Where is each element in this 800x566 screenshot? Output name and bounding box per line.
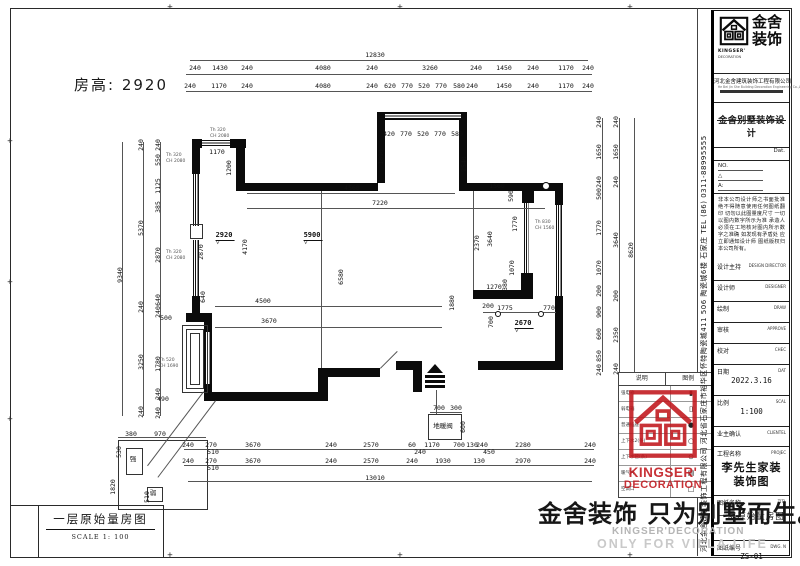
dim-label: 600 [596,328,603,340]
dim-label: 4560 [344,185,360,192]
row-label-cn: 审核 [717,325,729,334]
dim-label: 240 [584,458,596,465]
kingser-logo-icon [719,16,749,46]
dim-label: 4080 [315,83,331,90]
row-value: ZS-01 [714,552,789,561]
dimension-line [483,312,556,313]
dept-title-section: 金舍别墅装饰设计 [714,113,789,148]
dim-label: 200 [613,290,620,302]
watermark-slogan: 金舍装饰 只为别墅而生。 [538,494,800,529]
dim-label: 200 [596,285,603,297]
row-label-en: DWG. N [770,544,786,549]
dim-label: 770 [543,305,555,312]
dim-label: 620 [384,83,396,90]
point-circle [538,311,544,317]
wall-segment [192,148,200,174]
wall-segment [377,112,385,183]
window-symbol [193,174,199,226]
row-label-en: DRAW [774,305,786,310]
dim-label: 240 [241,83,253,90]
dim-label: 240 [613,176,620,188]
dim-label: 240 [155,407,162,419]
frame-tick: + [7,138,12,147]
frame-tick: + [397,552,402,561]
dim-label: 520 [418,83,430,90]
dim-label: 240 [366,65,378,72]
dim-label: 240 [582,83,594,90]
wall-segment [318,368,380,377]
company-logo-section: KINGSER' DECORATION 金舍装饰 [714,11,789,74]
dim-label: 1770 [512,216,519,232]
dim-label: 240 [406,458,418,465]
drawing-scale: SCALE 1: 100 [40,533,161,541]
dim-label: 3670 [261,318,277,325]
dimension-line [190,60,588,61]
row-label-cn: 比例 [717,398,729,407]
row-label-cn: 业主确认 [717,429,741,438]
dim-label: 240 [527,83,539,90]
dimension-line [184,449,594,450]
wall-segment [459,112,467,191]
window-tag: Th 320CH 2080 [166,153,185,164]
dim-label: 2540 [461,156,468,172]
dim-label: 2370 [474,235,481,251]
wall-segment [236,148,245,186]
dim-label: 1450 [496,83,512,90]
dim-label: 240 [584,442,596,449]
dim-label: 130 [473,458,485,465]
dim-label: 770 [400,131,412,138]
dim-label: 2970 [515,458,531,465]
dim-label: 240 [527,65,539,72]
row-value: 李先生家装装饰图 [714,461,789,489]
dim-label: 1430 [212,65,228,72]
dim-label: 地暖阀 [433,423,453,430]
detail-box [190,333,200,385]
dimension-line [215,327,442,328]
dim-label: 770 [434,131,446,138]
dim-label: 700 [433,405,445,412]
dim-label: 240 [325,458,337,465]
row-label-cn: 绘制 [717,304,729,313]
window-tag: Th 830CH 1560 [535,220,554,231]
dim-label: 640 [155,294,162,306]
revision-triangle: △ [718,173,763,181]
dim-label: 1560 [489,183,505,190]
dim-label: 900 [596,306,603,318]
dim-label: 770 [435,83,447,90]
dim-label: 2570 [363,442,379,449]
dim-label: 580 [451,131,463,138]
dim-label: 2870 [155,247,162,263]
dimension-line [247,208,545,209]
detail-box [190,224,203,239]
dim-label: 3670 [245,442,261,449]
dim-label: 240 [182,458,194,465]
titleblock-row: 校对CHEC [714,344,789,365]
row-label-cn: 设计师 [717,283,735,292]
level-marker: 5900 [304,232,323,241]
dim-label: 300 [450,405,462,412]
dim-label: 1170 [558,83,574,90]
dim-label: 420 [383,131,395,138]
row-label-en: CLIENTEL [767,430,786,435]
frame-tick: + [627,4,632,13]
row-label-en: DESIGNER [765,284,786,289]
dim-label: 9340 [117,267,124,283]
dim-label: 4080 [315,65,331,72]
copyright-notice: 非本公司设计师之书面批准 绝不得随意使用任何图纸翻印 切勿以此图量度尺寸 一切以… [714,194,789,260]
dim-label: 5370 [138,220,145,236]
dim-label: 385 [155,201,162,213]
row-label-cn: 设计主持 [717,262,741,271]
dimension-line [186,74,592,75]
dim-label: 240 [466,83,478,90]
dim-label: 2350 [613,327,620,343]
dim-label: 弱 [150,490,157,497]
dim-label: 1070 [596,260,603,276]
dim-label: 3640 [487,231,494,247]
row-value: 1:100 [714,407,789,416]
logo-en-line2: DECORATION [718,55,741,59]
stamp-text-line2: DECORATION [615,479,711,491]
dim-label: 强 [130,456,137,463]
wall-segment [230,139,246,148]
window-tag: Th 320CH 2080 [210,128,229,139]
dim-label: 240 [138,301,145,313]
dimension-line [247,193,455,194]
dim-label: 1770 [596,220,603,236]
wall-segment [478,361,488,370]
no-label: NO. [718,163,763,171]
dim-label: 1170 [424,442,440,449]
dim-label: 240 [189,65,201,72]
titleblock-row: 绘制DRAW [714,302,789,323]
dim-label: 1890 [378,149,385,165]
dim-label: 1170 [209,149,225,156]
dim-label: 550 [155,154,162,166]
dim-label: 3640 [613,232,620,248]
dim-label: 240 [596,364,603,376]
dim-label: 530 [116,446,123,458]
title-block: KINGSER' DECORATION 金舍装饰 河北金舍建筑装饰工程有限公司 … [711,10,790,556]
frame-tick: + [7,279,12,288]
date-label-row: Dat. [714,148,789,161]
dim-label: 640 [200,291,207,303]
wall-segment [413,361,422,392]
watermark-en-line2: ONLY FOR VILLA LIFE [597,537,768,551]
frame-tick: + [167,552,172,561]
stairs-arrow [427,364,443,373]
dim-label: 520 [417,131,429,138]
dim-label: 700 [488,316,495,328]
title-box-divider [38,506,39,557]
dim-label: 380 [125,431,137,438]
row-label-en: PROJEC [771,450,786,455]
row-label-en: DAT [778,368,786,373]
dim-label: 1820 [110,479,117,495]
dim-label: 240 [470,65,482,72]
row-label-en: CHEC [775,347,786,352]
row-label-en: SCAL [776,399,786,404]
dim-label: 4500 [255,298,271,305]
dim-label: 240 [414,449,426,456]
dimension-line [215,306,442,307]
dim-label: 1125 [155,178,162,194]
dimension-line [143,142,144,416]
dim-label: 510 [207,449,219,456]
dim-label: 8620 [628,242,635,258]
row-value: 2022.3.16 [714,376,789,385]
titleblock-row: 工程名称PROJEC李先生家装装饰图 [714,447,789,496]
titleblock-row: 审核APPROVE [714,323,789,344]
dim-label: 3670 [245,458,261,465]
dim-label: 490 [157,396,169,403]
dim-label: 380 [502,279,509,291]
frame-tick: + [627,552,632,561]
dim-label: 1650 [596,144,603,160]
wall-segment [186,313,212,322]
dim-label: 1775 [497,305,513,312]
titleblock-row: 日期DAT2022.3.16 [714,365,789,396]
company-name-en: He Bei Jin She Building Decoration Engin… [718,85,786,89]
dim-label: 3260 [422,65,438,72]
dim-label: 240 [596,176,603,188]
dept-title: 金舍别墅装饰设计 [714,113,789,139]
frame-tick: + [397,4,402,13]
company-name: 河北金舍建筑装饰工程有限公司 [714,74,789,85]
stairs-icon [425,364,445,388]
wall-segment [555,296,563,370]
dim-label: 6580 [338,269,345,285]
kingser-stamp-icon [626,388,700,460]
dim-label: 1880 [449,295,456,311]
row-label-en: APPROVE [767,326,786,331]
titleblock-row: 设计主持DESIGN DIRECTOR [714,260,789,281]
row-label-en: DESIGN DIRECTOR [749,263,786,268]
point-circle [495,311,501,317]
dim-label: 240 [241,65,253,72]
wall-segment [204,392,326,401]
dimension-line [321,191,322,368]
legend-header: 说明 图例 [619,373,711,386]
dim-label: 970 [154,431,166,438]
frame-tick: + [167,4,172,13]
drawing-sheet: 房高: 2920 1283024014302404080240326024014… [0,0,800,566]
dimension-line [186,91,592,92]
dim-label: 500 [596,188,603,200]
dim-label: 2870 [198,244,205,260]
logo-en-line1: KINGSER' [718,49,746,54]
dim-label: 240 [596,116,603,128]
title-underline [46,529,155,530]
dim-label: 850 [596,350,603,362]
dim-label: 240 [138,139,145,151]
dim-label: 1170 [211,83,227,90]
drawing-title-box: 一层原始量房图 SCALE 1: 100 [10,505,164,557]
a-label: A: [718,183,763,191]
number-rows: NO. △ A: [714,163,789,194]
dim-label: 580 [453,83,465,90]
dim-label: 1170 [558,65,574,72]
dim-label: 600 [460,421,467,433]
level-marker: 2920 [216,232,235,241]
dim-label: 200 [482,303,494,310]
window-symbol [556,205,562,296]
drawing-title: 一层原始量房图 [40,511,161,527]
dim-label: 240 [155,139,162,151]
dim-label: 500 [160,315,172,322]
titleblock-row: 比例SCAL1:100 [714,396,789,427]
row-label-cn: 日期 [717,367,729,376]
window-symbol [202,140,230,146]
dimension-line [430,412,462,413]
wall-segment [488,361,563,370]
level-marker: 2670 [515,320,534,329]
titleblock-row: 设计师DESIGNER [714,281,789,302]
dim-label: 1200 [226,160,233,176]
dim-label: 1650 [613,144,620,160]
wall-segment [473,290,533,299]
company-stamp: KINGSER' DECORATION [615,388,711,491]
titleblock-row: 业主确认CLIENTEL [714,427,789,447]
frame-tick: + [7,416,12,425]
dim-label: 3250 [138,354,145,370]
dim-label: 700 [453,442,465,449]
dimension-line [188,481,592,482]
point-circle [542,182,550,190]
dim-label: 240 [182,442,194,449]
dim-label: 12830 [365,52,385,59]
dim-label: 240 [138,406,145,418]
dim-label: 1450 [496,65,512,72]
dim-label: 7220 [372,200,388,207]
dim-label: 240 [582,65,594,72]
dim-label: 1930 [435,458,451,465]
dim-label: 4170 [242,239,249,255]
company-section: 河北金舍建筑装饰工程有限公司 He Bei Jin She Building D… [714,74,789,103]
dim-label: 510 [207,465,219,472]
dim-label: 1070 [509,260,516,276]
dim-label: 1270 [486,284,502,291]
dim-label: 450 [483,449,495,456]
row-label-cn: 校对 [717,346,729,355]
dim-label: 13010 [365,475,385,482]
window-tag: Th 520CH 1690 [159,358,178,369]
window-symbol [385,113,461,119]
window-symbol [524,203,529,273]
company-credential-bar [720,90,783,93]
row-label-cn: 工程名称 [717,449,741,458]
legend-col-description: 说明 [619,373,666,385]
stamp-text-line1: KINGSER' [615,466,711,479]
wall-segment [521,273,533,290]
dim-label: 590 [508,190,515,202]
wall-segment [192,139,202,148]
dim-label: 240 [325,442,337,449]
window-tag: Th 320CH 2080 [166,250,185,261]
dim-label: 2280 [515,442,531,449]
dimension-line [184,465,594,466]
wall-segment [522,191,534,203]
dim-label: 240 [613,116,620,128]
dim-label: 240 [366,83,378,90]
dim-label: 240 [184,83,196,90]
dim-label: 2570 [363,458,379,465]
logo-cn: 金舍装饰 [748,14,786,48]
dim-label: 770 [401,83,413,90]
